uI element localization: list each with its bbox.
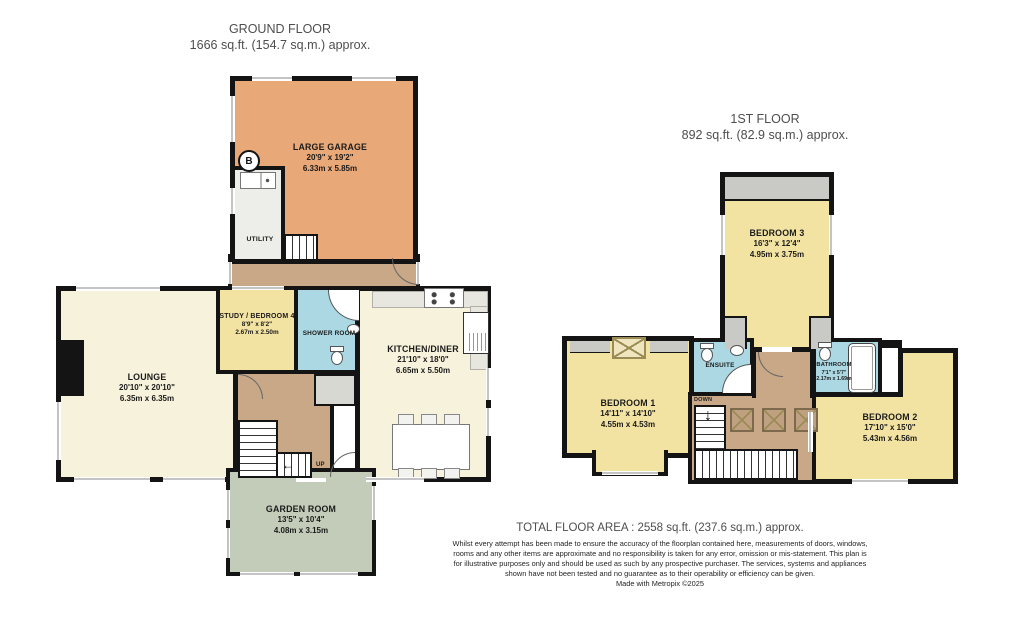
stairs-down-label: DOWN	[694, 397, 712, 403]
room-dims-imperial: 21'10" x 18'0"	[361, 355, 485, 365]
down-arrow-icon: ↓	[704, 408, 712, 424]
garage-window-top-2	[352, 76, 396, 81]
garage-steps	[284, 234, 318, 261]
kitchen-window-right-1	[486, 368, 491, 400]
ground-floor-header: GROUND FLOOR 1666 sq.ft. (154.7 sq.m.) a…	[155, 22, 405, 53]
bedroom1-bay-window	[602, 471, 658, 475]
lounge-window-bottom-1	[74, 477, 150, 482]
bedroom1-eaves-left	[570, 341, 610, 353]
bedroom3-eaves-top	[725, 177, 829, 201]
bedroom2-window-left	[808, 412, 813, 452]
room-name: BEDROOM 2	[820, 412, 960, 423]
disclaimer-text: Whilst every attempt has been made to en…	[453, 539, 868, 578]
bedroom3-label: BEDROOM 3 16'3" x 12'4" 4.95m x 3.75m	[725, 228, 829, 260]
bathroom-toilet	[818, 342, 832, 361]
shower-room-label: SHOWER ROOM	[294, 330, 364, 337]
boiler-letter: B	[245, 156, 252, 167]
first-floor-header: 1ST FLOOR 892 sq.ft. (82.9 sq.m.) approx…	[650, 112, 880, 143]
shower-room-toilet	[330, 346, 344, 365]
room-dims-imperial: 16'3" x 12'4"	[725, 239, 829, 249]
hob-icon	[424, 288, 464, 308]
first-floor-area: 892 sq.ft. (82.9 sq.m.) approx.	[650, 128, 880, 144]
room-dims-imperial: 14'11" x 14'10"	[566, 409, 690, 419]
room-dims-metric: 4.55m x 4.53m	[566, 420, 690, 430]
wall-segment	[878, 340, 902, 348]
up-arrow-icon: ←	[282, 459, 294, 471]
room-dims-metric: 6.33m x 5.85m	[240, 164, 420, 174]
room-dims-imperial: 17'10" x 15'0"	[820, 423, 960, 433]
ensuite-sink	[730, 345, 744, 356]
dining-chair	[398, 414, 414, 425]
hall-closet	[314, 374, 356, 406]
utility-label: UTILITY	[235, 236, 285, 243]
total-floor-area: TOTAL FLOOR AREA : 2558 sq.ft. (237.6 sq…	[410, 522, 910, 534]
kitchen-label: KITCHEN/DINER 21'10" x 18'0" 6.65m x 5.5…	[361, 344, 485, 376]
room-name: STUDY / BEDROOM 4	[216, 312, 298, 321]
garage-window-top-1	[252, 76, 292, 81]
bedroom2-extension	[898, 348, 958, 397]
lounge-window-left	[56, 402, 61, 460]
dining-table	[392, 424, 470, 470]
room-name: LARGE GARAGE	[240, 142, 420, 153]
toilet-bowl	[331, 351, 343, 365]
skylight-icon	[762, 408, 786, 432]
room-dims-metric: 2.17m x 1.69m	[813, 376, 855, 383]
room-dims-metric: 5.43m x 4.56m	[820, 434, 960, 444]
ensuite-toilet	[700, 343, 714, 362]
kitchen-window-bottom	[366, 477, 424, 482]
lounge-window-top	[76, 286, 160, 291]
first-floor-title: 1ST FLOOR	[650, 112, 880, 128]
garage-label: LARGE GARAGE 20'9" x 19'2" 6.33m x 5.85m	[240, 142, 420, 174]
dining-chair	[421, 414, 437, 425]
study-window-top	[232, 286, 284, 290]
room-dims-imperial: 8'9" x 8'2"	[216, 321, 298, 329]
garage-window-left-2	[230, 188, 235, 214]
room-dims-metric: 2.67m x 2.50m	[216, 329, 298, 337]
lounge-label: LOUNGE 20'10" x 20'10" 6.35m x 6.35m	[61, 372, 233, 404]
garden-window-left-2	[226, 528, 230, 558]
bedroom1-eaves-right	[650, 341, 688, 353]
kitchen-window-right-2	[486, 408, 491, 436]
utility-sink	[240, 172, 276, 189]
room-dims-imperial: 7'1" x 5'7"	[813, 370, 855, 377]
stairs-up-label: UP	[316, 462, 325, 468]
bathroom-label: BATHROOM 7'1" x 5'7" 2.17m x 1.69m	[813, 362, 855, 383]
room-dims-metric: 6.65m x 5.50m	[361, 366, 485, 376]
hall-garden-opening	[296, 478, 326, 482]
ground-floor-area: 1666 sq.ft. (154.7 sq.m.) approx.	[155, 38, 405, 54]
room-name: LOUNGE	[61, 372, 233, 383]
bedroom2-window-bottom	[852, 479, 908, 484]
room-name: BATHROOM	[813, 362, 855, 370]
stairs-down-run	[694, 449, 798, 480]
room-dims-imperial: 13'5" x 10'4"	[236, 515, 366, 525]
garden-window-left-1	[226, 490, 230, 520]
bedroom2-label: BEDROOM 2 17'10" x 15'0" 5.43m x 4.56m	[820, 412, 960, 444]
garage-window-left-1	[230, 96, 235, 142]
room-name: BEDROOM 3	[725, 228, 829, 239]
dining-chair	[444, 468, 460, 479]
skylight-icon	[730, 408, 754, 432]
disclaimer-block: Whilst every attempt has been made to en…	[450, 539, 870, 589]
garden-window-bottom-1	[240, 572, 294, 576]
dining-chair	[444, 414, 460, 425]
floorplan-canvas: GROUND FLOOR 1666 sq.ft. (154.7 sq.m.) a…	[0, 0, 1024, 626]
toilet-bowl	[819, 347, 831, 361]
room-dims-imperial: 20'9" x 19'2"	[240, 153, 420, 163]
room-name: GARDEN ROOM	[236, 504, 366, 515]
room-dims-imperial: 20'10" x 20'10"	[61, 383, 233, 393]
credit-text: Made with Metropix ©2025	[450, 579, 870, 589]
room-name: KITCHEN/DINER	[361, 344, 485, 355]
room-name: BEDROOM 1	[566, 398, 690, 409]
room-dims-metric: 6.35m x 6.35m	[61, 394, 233, 404]
garden-window-right	[372, 486, 376, 520]
garden-window-bottom-2	[300, 572, 358, 576]
toilet-bowl	[701, 348, 713, 362]
bedroom3-window-right	[829, 215, 834, 255]
room-dims-metric: 4.95m x 3.75m	[725, 250, 829, 260]
ensuite-label: ENSUITE	[690, 362, 750, 369]
boiler-symbol: B	[238, 150, 260, 172]
study-label: STUDY / BEDROOM 4 8'9" x 8'2" 2.67m x 2.…	[216, 312, 298, 338]
room-dims-metric: 4.08m x 3.15m	[236, 526, 366, 536]
entrance-hall-door-left	[228, 262, 232, 284]
skylight-icon	[612, 337, 646, 359]
garden-room-label: GARDEN ROOM 13'5" x 10'4" 4.08m x 3.15m	[236, 504, 366, 536]
ground-floor-title: GROUND FLOOR	[155, 22, 405, 38]
lounge-window-bottom-2	[163, 477, 225, 482]
stairs-up-main	[238, 420, 278, 478]
bedroom1-label: BEDROOM 1 14'11" x 14'10" 4.55m x 4.53m	[566, 398, 690, 430]
skylight-icon	[794, 408, 818, 432]
